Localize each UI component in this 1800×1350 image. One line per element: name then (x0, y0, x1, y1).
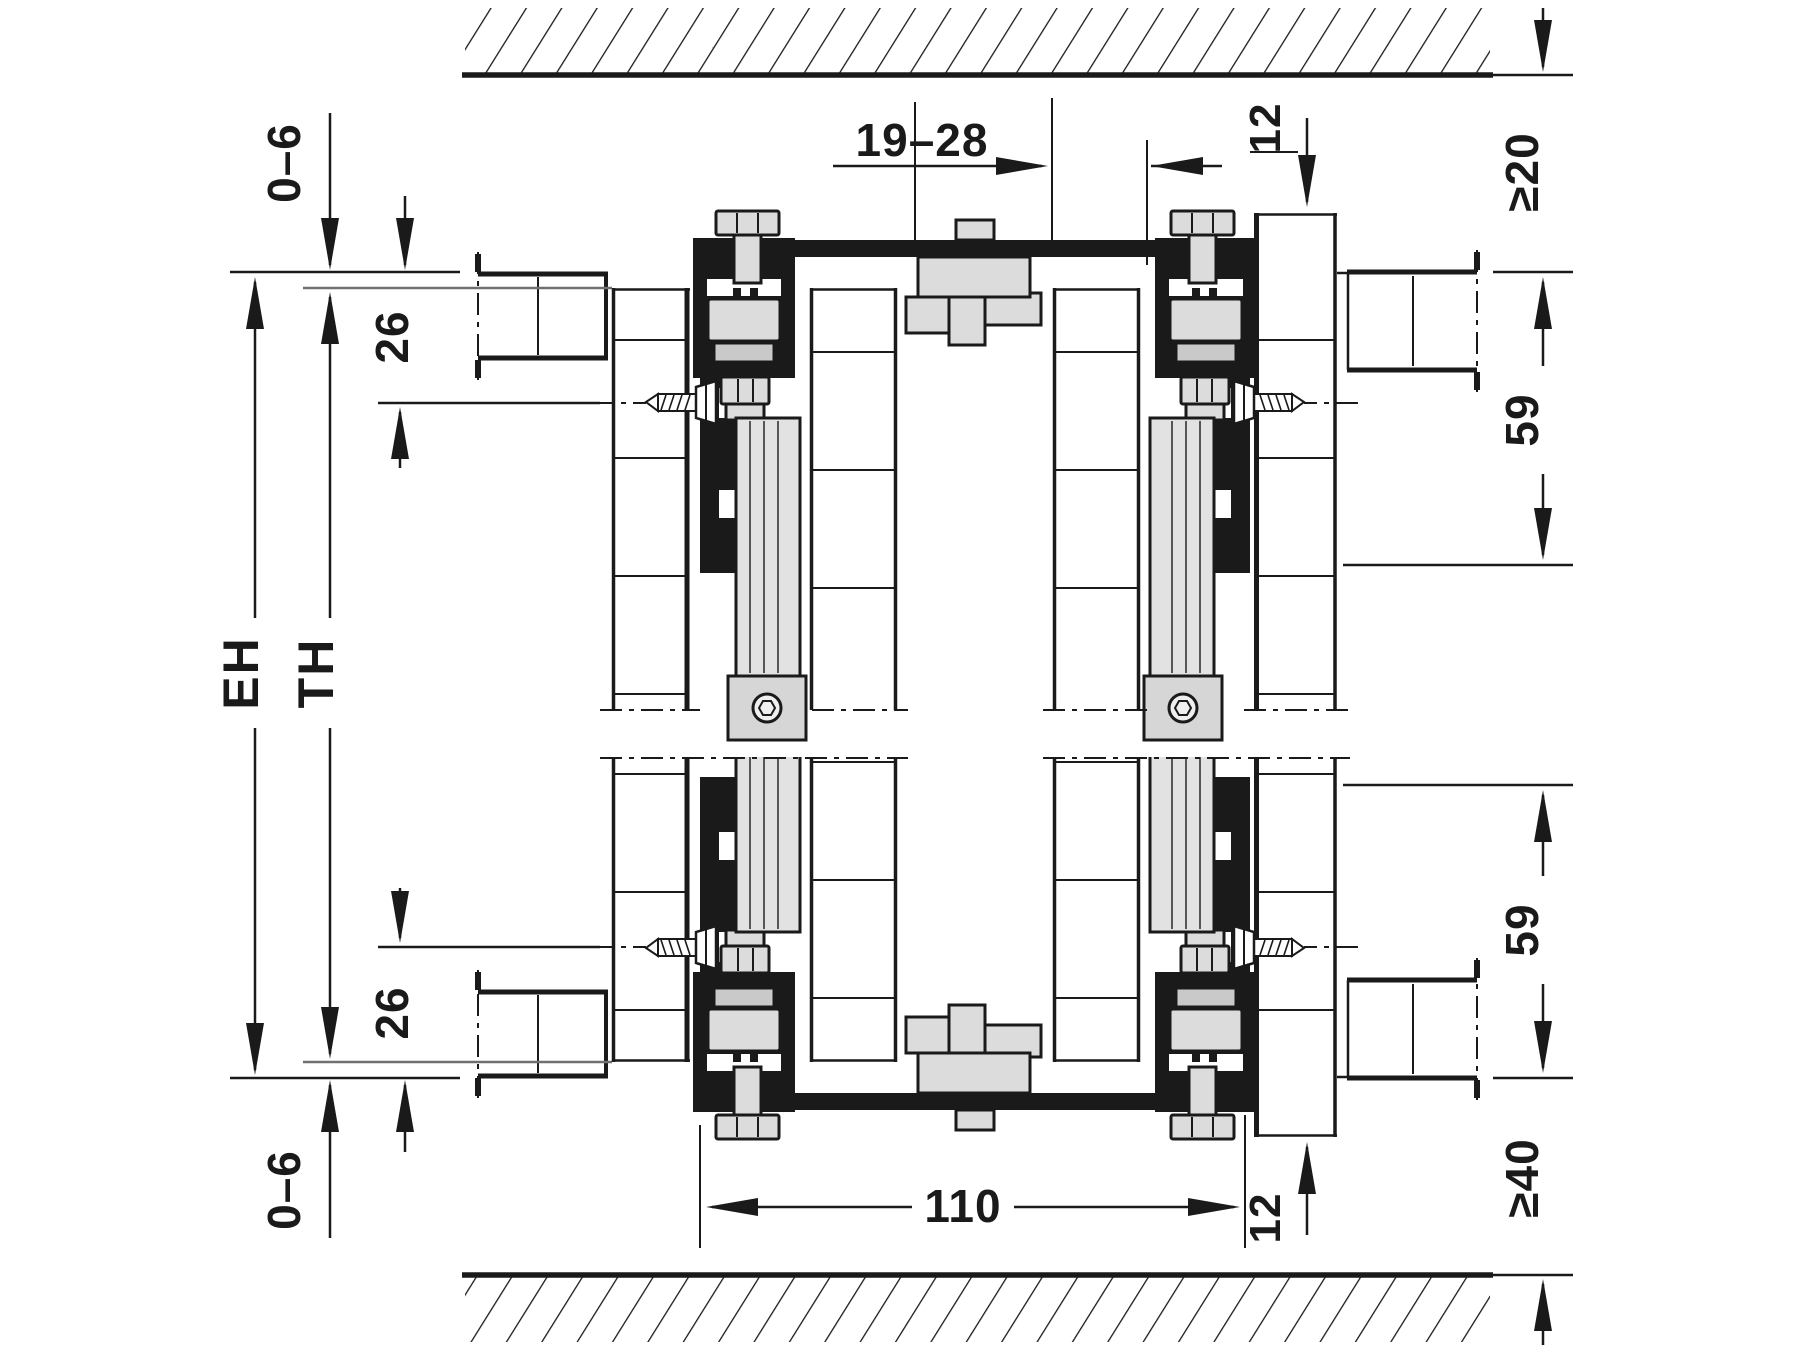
track-web (795, 240, 1155, 257)
dim-top-adjustment: 0–6 (258, 123, 310, 203)
dim-installation-height: EH (213, 636, 269, 709)
ceiling-hatch (462, 8, 1493, 75)
dim-upper-track-zone: 59 (1496, 393, 1548, 446)
dim-bottom-adjustment: 0–6 (258, 1150, 310, 1230)
dim-track-width: 110 (924, 1180, 1001, 1232)
dim-top-engagement: 12 (1241, 103, 1290, 154)
drawing-canvas: 0–6 26 EH TH 26 0–6 19–28 (0, 0, 1800, 1350)
floor-hatch (462, 1275, 1493, 1342)
dim-bottom-offset: 26 (366, 986, 418, 1039)
break-lines (600, 710, 1350, 758)
sliding-door-panel-front-outer (612, 288, 690, 710)
dim-bottom-clearance: ≥40 (1496, 1138, 1548, 1217)
dim-top-clearance: ≥20 (1496, 132, 1548, 211)
sliding-door-fitting-section-drawing: 0–6 26 EH TH 26 0–6 19–28 (0, 0, 1800, 1350)
dim-lower-track-zone: 59 (1496, 903, 1548, 956)
dim-door-thickness: 19–28 (856, 114, 989, 166)
sliding-door-panel-rear-outer (1254, 213, 1337, 710)
dim-bottom-engagement: 12 (1241, 1193, 1290, 1244)
fascia-panel (478, 252, 608, 380)
dim-top-offset: 26 (366, 310, 418, 363)
sliding-door-panel-rear-inner (1053, 288, 1140, 710)
cabinet-panel (1347, 250, 1477, 392)
upper-assembly (230, 75, 1573, 740)
dim-door-height: TH (288, 638, 344, 709)
sliding-door-panel-front-inner (810, 288, 897, 710)
